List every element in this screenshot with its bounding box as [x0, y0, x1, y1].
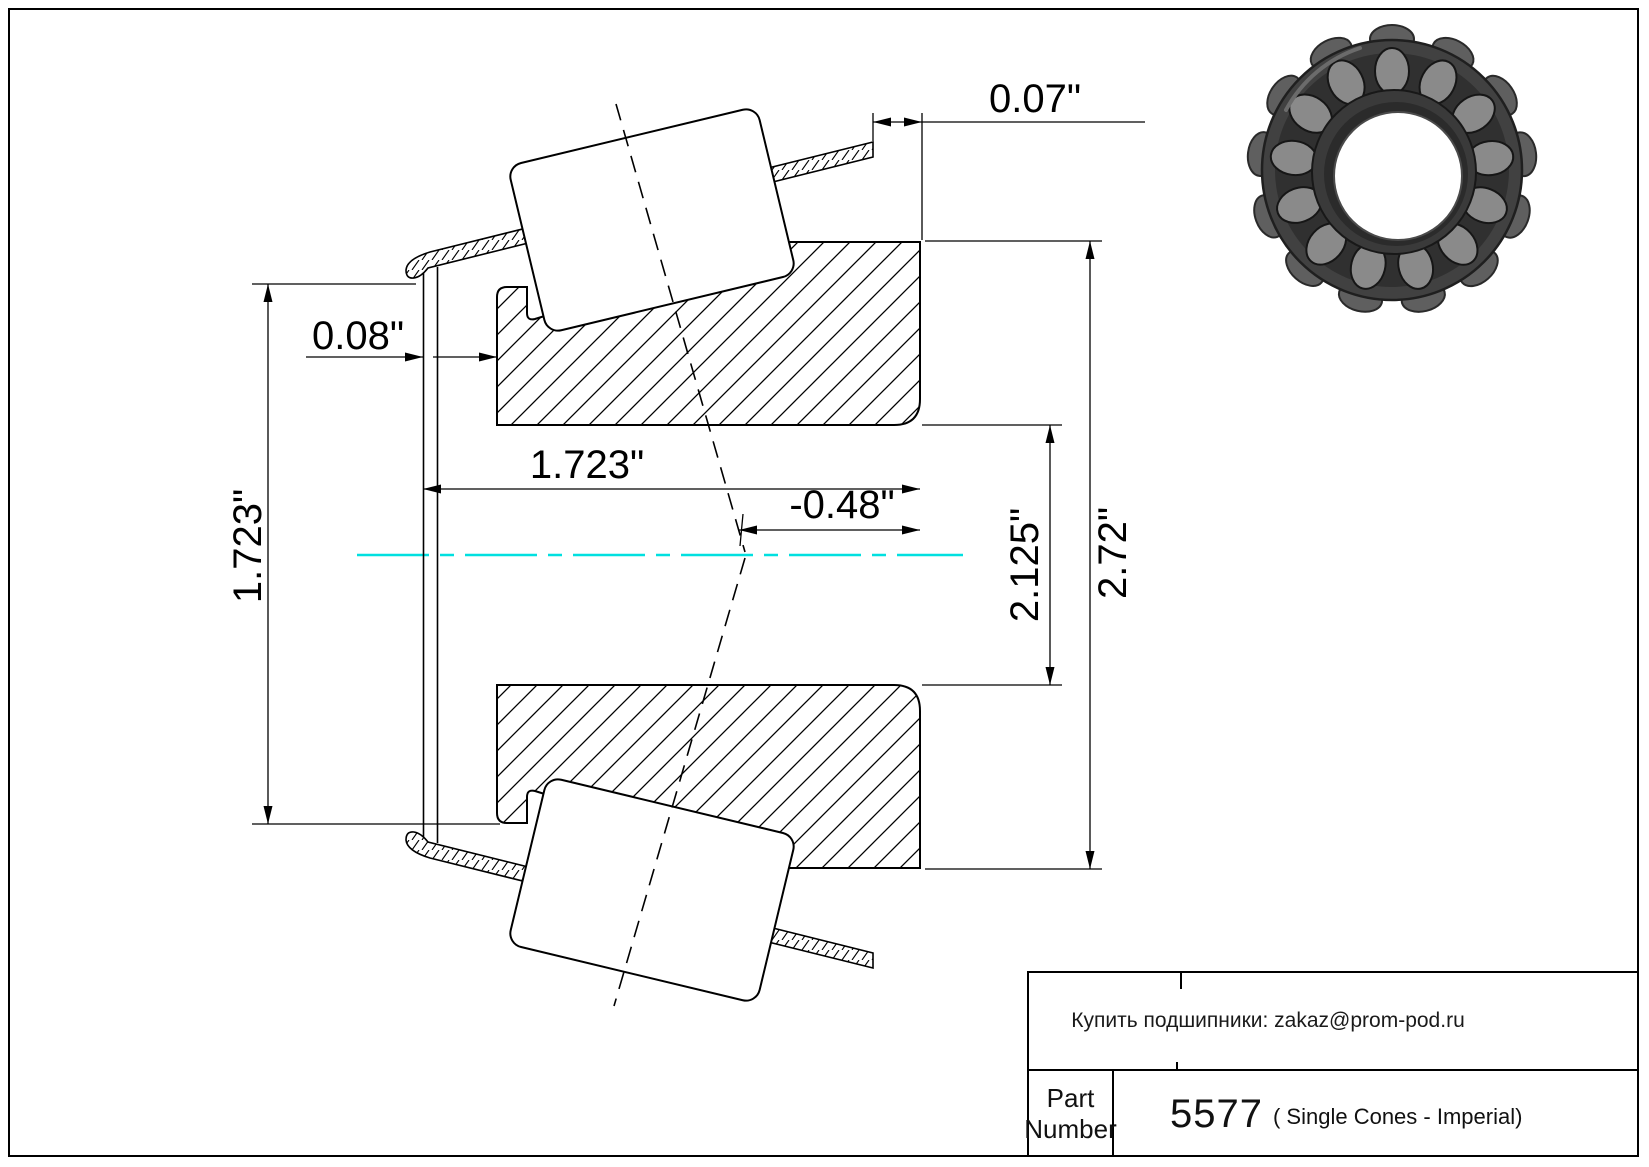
- dim-label-cage-standout-front: 0.08": [312, 314, 404, 358]
- dim-label-outside: 2.72": [1091, 507, 1135, 599]
- drawing-page: 0.07" 0.08" 1.723" -0.48": [0, 0, 1649, 1167]
- part-label-line2: Number: [1024, 1114, 1116, 1145]
- dim-label-cone-width: 1.723": [530, 443, 644, 487]
- title-block: Купить подшипники: zakaz@prom-pod.ru Par…: [1027, 971, 1639, 1157]
- dim-label-front-flange: 1.723": [226, 489, 270, 603]
- centering-tick-bottom: [1176, 1062, 1178, 1069]
- centering-tick-top: [1180, 973, 1182, 989]
- title-block-part-row: Part Number 5577 ( Single Cones - Imperi…: [1029, 1071, 1637, 1157]
- part-number-label: Part Number: [1029, 1071, 1114, 1157]
- bearing-photo-bore: [1334, 112, 1462, 240]
- title-block-contact-cell: Купить подшипники: zakaz@prom-pod.ru: [1029, 973, 1637, 1071]
- dim-label-effective-center: -0.48": [789, 483, 894, 527]
- part-number-value: 5577: [1170, 1092, 1263, 1137]
- bearing-photo: [1245, 25, 1538, 316]
- part-type-label: ( Single Cones - Imperial): [1273, 1098, 1522, 1130]
- dim-label-cage-standout-back: 0.07": [989, 77, 1081, 121]
- dim-label-bore: 2.125": [1003, 508, 1047, 622]
- part-label-line1: Part: [1047, 1083, 1095, 1114]
- dim-0-07: [873, 113, 1145, 240]
- part-number-cell: 5577 ( Single Cones - Imperial): [1114, 1071, 1637, 1157]
- contact-text: Купить подшипники: zakaz@prom-pod.ru: [1071, 1009, 1465, 1033]
